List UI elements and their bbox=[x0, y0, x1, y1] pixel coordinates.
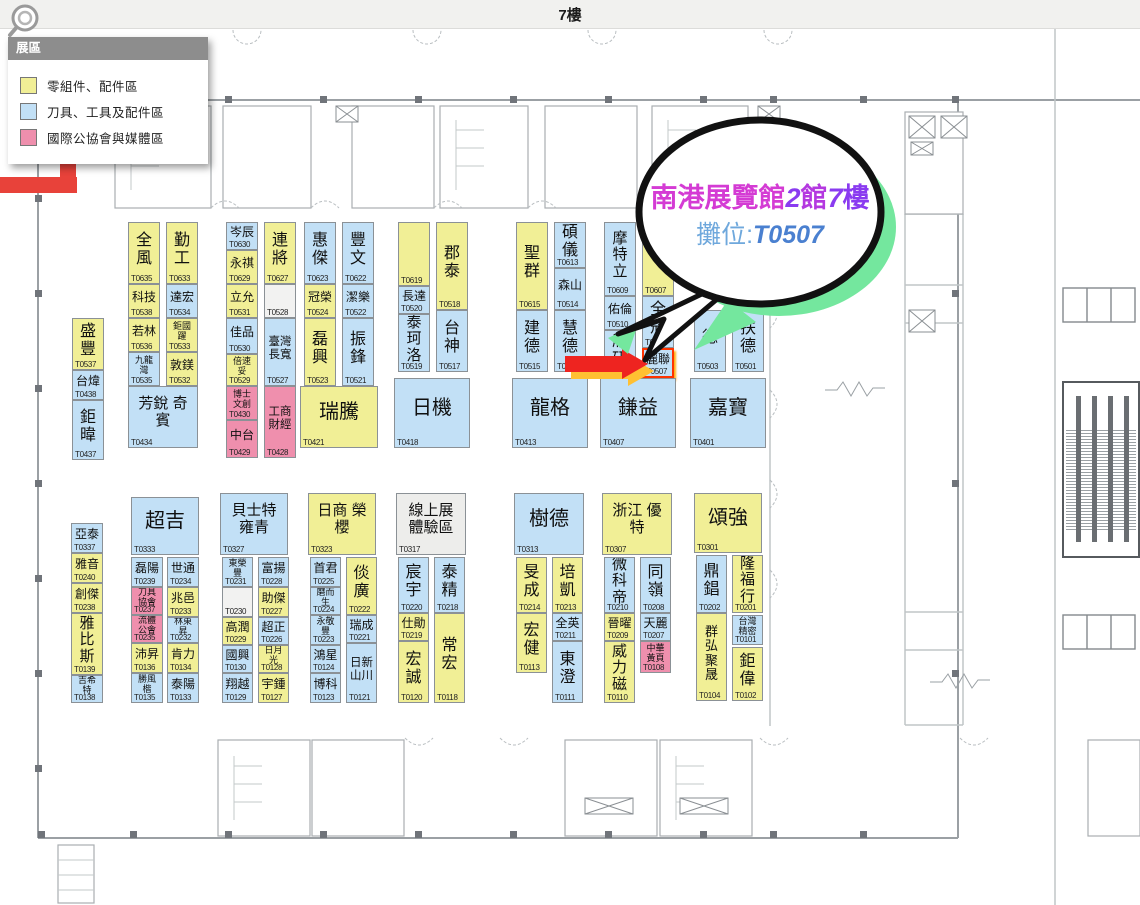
booth-number: T0231 bbox=[225, 577, 246, 586]
booth-T0520[interactable]: 長達T0520 bbox=[398, 286, 430, 314]
booth-label: 岑辰 bbox=[230, 226, 254, 239]
booth-T0138[interactable]: 吉希特T0138 bbox=[71, 675, 103, 703]
booth-T0202[interactable]: 鼎錩T0202 bbox=[696, 555, 727, 613]
booth-T0521[interactable]: 振鋒T0521 bbox=[342, 318, 374, 386]
booth-T0418[interactable]: 日機T0418 bbox=[394, 378, 470, 448]
booth-number: T0623 bbox=[307, 274, 328, 283]
booth-T0110[interactable]: 威力磁T0110 bbox=[604, 641, 635, 703]
booth-T0518[interactable]: 郡泰T0518 bbox=[436, 222, 468, 310]
booth-label: 建德 bbox=[519, 320, 545, 355]
booth-T0307[interactable]: 浙江 優特T0307 bbox=[602, 493, 672, 555]
booth-number: T0529 bbox=[229, 376, 250, 385]
booth-label: 翔越 bbox=[225, 678, 249, 691]
booth-T0503[interactable]: 德T0503 bbox=[694, 310, 726, 372]
legend-item-associations: 國際公協會與媒體區 bbox=[16, 128, 200, 147]
booth-label: 磊興 bbox=[307, 331, 333, 366]
legend: 展區 零組件、配件區 刀具、工具及配件區 國際公協會與媒體區 bbox=[8, 37, 208, 164]
booth-T0139[interactable]: 雅比斯T0139 bbox=[71, 613, 103, 675]
booth-label: 隆福行 bbox=[735, 556, 760, 605]
booth-T0528[interactable]: T0528 bbox=[264, 284, 296, 318]
booth-label: 潔樂 bbox=[346, 291, 370, 304]
booth-number: T0127 bbox=[261, 693, 282, 702]
booth-T0507[interactable]: 麗聯T0507 bbox=[642, 348, 674, 378]
booth-label: 貝士特 雍青 bbox=[223, 503, 285, 535]
booth-T0317[interactable]: 線上展 體驗區T0317 bbox=[396, 493, 466, 555]
booth-T0128[interactable]: 日月光T0128 bbox=[258, 645, 289, 673]
booth-number: T0527 bbox=[267, 376, 288, 385]
booth-label: 宏健 bbox=[519, 622, 544, 657]
booth-label: 台灣精密 bbox=[735, 617, 760, 636]
booth-label: 佑倫 bbox=[608, 303, 632, 316]
booth-number: T0635 bbox=[131, 274, 152, 283]
booth-T0235[interactable]: 流體公會T0235 bbox=[131, 615, 163, 643]
booth-number: T0522 bbox=[345, 308, 366, 317]
booth-T0534[interactable]: 達宏T0534 bbox=[166, 284, 198, 318]
booth-T0234[interactable]: 世通T0234 bbox=[167, 557, 199, 587]
booth-number: T0530 bbox=[229, 344, 250, 353]
booth-number: T0301 bbox=[697, 543, 718, 552]
booth-number: T0102 bbox=[735, 691, 756, 700]
booth-number: T0223 bbox=[313, 635, 334, 644]
booth-label: 宏誠 bbox=[401, 651, 426, 686]
booth-T0514[interactable]: 森山T0514 bbox=[554, 268, 586, 310]
booth-T0135[interactable]: 勝風楷T0135 bbox=[131, 673, 163, 703]
legend-swatch-pink bbox=[20, 129, 37, 146]
booth-label: 超吉 bbox=[145, 511, 185, 533]
booth-label: 日商 榮櫻 bbox=[311, 503, 373, 535]
booth-T0220[interactable]: 宸宇T0220 bbox=[398, 557, 429, 613]
booth-label: 碩儀 bbox=[557, 224, 583, 259]
booth-T0413[interactable]: 龍格T0413 bbox=[512, 378, 588, 448]
booth-label: 森山 bbox=[558, 279, 582, 292]
booth-number: T0428 bbox=[267, 448, 288, 457]
magnifier-icon bbox=[6, 1, 46, 41]
booth-number: T0233 bbox=[170, 607, 191, 616]
booth-T0224[interactable]: 磨而生T0224 bbox=[310, 587, 341, 615]
booth-label: 沛昇 bbox=[135, 648, 159, 661]
booth-number: T0218 bbox=[437, 603, 458, 612]
booth-number: T0135 bbox=[134, 693, 155, 702]
booth-number: T0129 bbox=[225, 693, 246, 702]
booth-number: T0209 bbox=[607, 631, 628, 640]
booth-label: 日機 bbox=[412, 398, 452, 420]
booth-label: 世通 bbox=[171, 562, 195, 575]
booth-label: 東榮豐 bbox=[225, 559, 250, 578]
booth-T0133[interactable]: 泰陽T0133 bbox=[167, 673, 199, 703]
booth-number: T0313 bbox=[517, 545, 538, 554]
booth-T0531[interactable]: 立允T0531 bbox=[226, 284, 258, 318]
booth-number: T0613 bbox=[557, 258, 578, 267]
booth-T0124[interactable]: 鴻星T0124 bbox=[310, 645, 341, 673]
booth-label: 中華黃頁 bbox=[643, 644, 668, 663]
booth-T0609[interactable]: 摩特立T0609 bbox=[604, 222, 636, 296]
booth-number: T0533 bbox=[169, 342, 190, 351]
booth-T0429[interactable]: 中台T0429 bbox=[226, 420, 258, 458]
booth-label: 麗聯 bbox=[646, 353, 670, 366]
booth-number: T0111 bbox=[555, 693, 575, 702]
booth-T0102[interactable]: 鉅偉T0102 bbox=[732, 647, 763, 701]
booth-number: T0507 bbox=[646, 367, 667, 376]
booth-T0239[interactable]: 磊陽T0239 bbox=[131, 557, 163, 587]
booth-T0428[interactable]: 工商財經T0428 bbox=[264, 386, 296, 458]
booth-label: 摩特立 bbox=[607, 231, 633, 280]
booth-label: 龍格 bbox=[530, 398, 570, 420]
booth-label: 全英 bbox=[555, 617, 579, 630]
booth-T0532[interactable]: 敦鎂T0532 bbox=[166, 352, 198, 386]
booth-number: T0401 bbox=[693, 438, 714, 447]
booth-number: T0237 bbox=[134, 605, 155, 614]
booth-T0238[interactable]: 創傑T0238 bbox=[71, 583, 103, 613]
booth-label: 東澄 bbox=[555, 651, 580, 686]
booth-T0421[interactable]: 瑞騰T0421 bbox=[300, 386, 378, 448]
booth-T0240[interactable]: 雅音T0240 bbox=[71, 553, 103, 583]
booth-T0630[interactable]: 岑辰T0630 bbox=[226, 222, 258, 250]
booth-label: 樹德 bbox=[529, 509, 569, 531]
zoom-button[interactable] bbox=[6, 1, 46, 41]
booth-label: 盛豐 bbox=[75, 323, 101, 358]
booth-number: T0518 bbox=[439, 300, 460, 309]
booth-T0437[interactable]: 鉅暐T0437 bbox=[72, 400, 104, 460]
booth-T0218[interactable]: 泰精T0218 bbox=[434, 557, 465, 613]
booth-label: 勝風楷 bbox=[134, 675, 160, 694]
booth-T0517[interactable]: 台神T0517 bbox=[436, 310, 468, 372]
title-bar: 7樓 bbox=[0, 0, 1140, 29]
booth-number: T0337 bbox=[74, 543, 95, 552]
booth-T0635[interactable]: 全風T0635 bbox=[128, 222, 160, 284]
booth-T0123[interactable]: 博科T0123 bbox=[310, 673, 341, 703]
booth-label: 佳品 bbox=[230, 326, 254, 339]
booth-number: T0201 bbox=[735, 603, 756, 612]
booth-number: T0538 bbox=[131, 308, 152, 317]
booth-T0223[interactable]: 永敬豐T0223 bbox=[310, 615, 341, 645]
booth-T0337[interactable]: 亞泰T0337 bbox=[71, 523, 103, 553]
booth-label: 達宏 bbox=[170, 291, 194, 304]
booth-number: T0214 bbox=[519, 603, 540, 612]
booth-T0327[interactable]: 貝士特 雍青T0327 bbox=[220, 493, 288, 555]
booth-number: T0515 bbox=[519, 362, 540, 371]
booth-label: 仕勛 bbox=[401, 617, 425, 630]
booth-T0228[interactable]: 富揚T0228 bbox=[258, 557, 289, 587]
booth-number: T0213 bbox=[555, 603, 576, 612]
booth-label: 立允 bbox=[230, 291, 254, 304]
booth-label: 日新山川 bbox=[349, 657, 374, 682]
booth-number: T0225 bbox=[313, 577, 334, 586]
booth-number: T0407 bbox=[603, 438, 624, 447]
booth-number: T0429 bbox=[229, 448, 250, 457]
booth-number: T0437 bbox=[75, 450, 96, 459]
booth-number: T0323 bbox=[311, 545, 332, 554]
booth-T0524[interactable]: 冠榮T0524 bbox=[304, 284, 336, 318]
booth-T0523[interactable]: 磊興T0523 bbox=[304, 318, 336, 386]
booth-label: 天麗 bbox=[643, 617, 667, 630]
booth-T0537[interactable]: 盛豐T0537 bbox=[72, 318, 104, 370]
booth-T0333[interactable]: 超吉T0333 bbox=[131, 497, 199, 555]
booth-number: T0317 bbox=[399, 545, 420, 554]
booth-number: T0531 bbox=[229, 308, 250, 317]
legend-item-components: 零組件、配件區 bbox=[16, 76, 200, 95]
booth-number: T0629 bbox=[229, 274, 250, 283]
booth-label: 扶德 bbox=[735, 320, 761, 355]
booth-label: 首君 bbox=[313, 562, 337, 575]
booth-label: 勤工 bbox=[169, 232, 195, 267]
booth-number: T0434 bbox=[131, 438, 152, 447]
booth-number: T0521 bbox=[345, 376, 366, 385]
booth-T0430[interactable]: 博士文創T0430 bbox=[226, 386, 258, 420]
booth-number: T0134 bbox=[170, 663, 191, 672]
booth-number: T0622 bbox=[345, 274, 366, 283]
booth-label: 宇鍾 bbox=[261, 678, 285, 691]
booth-T0633[interactable]: 勤工T0633 bbox=[166, 222, 198, 284]
booth-T0136[interactable]: 沛昇T0136 bbox=[131, 643, 163, 673]
booth-label: 敦鎂 bbox=[170, 359, 194, 372]
booth-label: 郡泰 bbox=[439, 245, 465, 280]
booth-T0113[interactable]: 宏健T0113 bbox=[516, 613, 547, 673]
booth-number: T0226 bbox=[261, 635, 282, 644]
legend-swatch-blue bbox=[20, 103, 37, 120]
booth-number: T0130 bbox=[225, 663, 246, 672]
booth-label: 永祺 bbox=[230, 257, 254, 270]
booth-number: T0307 bbox=[605, 545, 626, 554]
booth-label: 肯力 bbox=[171, 648, 195, 661]
booth-T0619[interactable]: T0619 bbox=[398, 222, 430, 286]
floor-title: 7樓 bbox=[558, 4, 581, 25]
booth-number: T0224 bbox=[313, 605, 334, 614]
booth-T0111[interactable]: 東澄T0111 bbox=[552, 641, 583, 703]
booth-label: 助傑 bbox=[261, 592, 285, 605]
booth-T0530[interactable]: 佳品T0530 bbox=[226, 318, 258, 354]
booth-label: 磊陽 bbox=[135, 562, 159, 575]
booth-T0527[interactable]: 臺灣長寬T0527 bbox=[264, 318, 296, 386]
booth-T0535[interactable]: 九龍灣T0535 bbox=[128, 352, 160, 386]
booth-T0434[interactable]: 芳銳 奇賓T0434 bbox=[128, 386, 198, 448]
booth-number: T0136 bbox=[134, 663, 155, 672]
booth-T0613[interactable]: 碩儀T0613 bbox=[554, 222, 586, 268]
booth-T0536[interactable]: 若林T0536 bbox=[128, 318, 160, 352]
booth-number: T0235 bbox=[134, 633, 155, 642]
booth-number: T0630 bbox=[229, 240, 250, 249]
booth-number: T0238 bbox=[74, 603, 95, 612]
booth-T0130[interactable]: 國興T0130 bbox=[222, 645, 253, 673]
booth-label: 倓廣 bbox=[349, 565, 374, 600]
booth-T0221[interactable]: 瑞成T0221 bbox=[346, 615, 377, 643]
booth-number: T0120 bbox=[401, 693, 422, 702]
booth-T0233[interactable]: 兆邑T0233 bbox=[167, 587, 199, 617]
booth-T0226[interactable]: 超正T0226 bbox=[258, 617, 289, 645]
booth-number: T0232 bbox=[170, 633, 191, 642]
booth-T0127[interactable]: 宇鍾T0127 bbox=[258, 673, 289, 703]
booth-number: T0523 bbox=[307, 376, 328, 385]
booth-T0629[interactable]: 永祺T0629 bbox=[226, 250, 258, 284]
booth-label: 高潤 bbox=[225, 621, 249, 634]
booth-number: T0128 bbox=[261, 663, 282, 672]
booth-T0227[interactable]: 助傑T0227 bbox=[258, 587, 289, 617]
booth-T0607[interactable]: T0607 bbox=[642, 222, 674, 296]
booth-number: T0108 bbox=[643, 663, 664, 672]
booth-label: 若林 bbox=[132, 325, 156, 338]
booth-number: T0418 bbox=[397, 438, 418, 447]
booth-T0214[interactable]: 旻成T0214 bbox=[516, 557, 547, 613]
booth-T0121[interactable]: 日新山川T0121 bbox=[346, 643, 377, 703]
booth-label: 全風 bbox=[131, 232, 157, 267]
booth-number: T0609 bbox=[607, 286, 628, 295]
booth-T0510[interactable]: 佑倫T0510 bbox=[604, 296, 636, 330]
booth-label: 九龍灣 bbox=[131, 356, 157, 375]
legend-item-tools: 刀具、工具及配件區 bbox=[16, 102, 200, 121]
booth-label: 振鋒 bbox=[345, 331, 371, 366]
booth-label: 同嶺 bbox=[643, 564, 668, 599]
booth-number: T0230 bbox=[225, 607, 246, 616]
booth-T0509[interactable]: 欣研T0509 bbox=[604, 330, 636, 378]
booth-label: 國興 bbox=[225, 649, 249, 662]
booth-T0622[interactable]: 豐文T0622 bbox=[342, 222, 374, 284]
booth-label: 兆邑 bbox=[171, 592, 195, 605]
booth-T0207[interactable]: 天麗T0207 bbox=[640, 613, 671, 641]
booth-number: T0438 bbox=[75, 390, 96, 399]
booth-number: T0519 bbox=[401, 362, 422, 371]
booth-label: 永敬豐 bbox=[313, 617, 338, 636]
booth-number: T0124 bbox=[313, 663, 334, 672]
booth-label: 創傑 bbox=[75, 588, 99, 601]
booth-label: 旻成 bbox=[519, 564, 544, 599]
booth-number: T0537 bbox=[75, 360, 96, 369]
booth-number: T0227 bbox=[261, 607, 282, 616]
booth-T0229[interactable]: 高潤T0229 bbox=[222, 617, 253, 645]
booth-label: 宸宇 bbox=[401, 564, 426, 599]
booth-T0101[interactable]: 台灣精密T0101 bbox=[732, 615, 763, 645]
booth-number: T0524 bbox=[307, 308, 328, 317]
booth-T0201[interactable]: 隆福行T0201 bbox=[732, 555, 763, 613]
booth-label: 培凱 bbox=[555, 564, 580, 599]
booth-label: 德 bbox=[702, 329, 718, 346]
booth-number: T0210 bbox=[607, 603, 628, 612]
booth-label: 台神 bbox=[439, 320, 465, 355]
booth-label: 瑞騰 bbox=[319, 402, 359, 424]
booth-number: T0229 bbox=[225, 635, 246, 644]
booth-number: T0607 bbox=[645, 286, 666, 295]
booth-label: 惠傑 bbox=[307, 232, 333, 267]
booth-label: 鎌益 bbox=[618, 398, 658, 420]
booth-number: T0220 bbox=[401, 603, 422, 612]
booth-label: 微科帝 bbox=[607, 557, 632, 606]
booth-T0222[interactable]: 倓廣T0222 bbox=[346, 557, 377, 615]
booth-T0237[interactable]: 刀具協會T0237 bbox=[131, 587, 163, 615]
booth-T0438[interactable]: 台煒T0438 bbox=[72, 370, 104, 400]
booth-number: T0133 bbox=[170, 693, 191, 702]
booth-number: T0333 bbox=[134, 545, 155, 554]
booth-label: 欣研 bbox=[607, 333, 633, 368]
booth-label: 科技 bbox=[132, 291, 156, 304]
booth-T0219[interactable]: 仕勛T0219 bbox=[398, 613, 429, 641]
booth-T0313[interactable]: 樹德T0313 bbox=[514, 493, 584, 555]
booth-number: T0513 bbox=[557, 362, 578, 371]
booth-T0515[interactable]: 建德T0515 bbox=[516, 310, 548, 372]
booth-number: T0139 bbox=[74, 665, 95, 674]
booth-T0232[interactable]: 林東昇T0232 bbox=[167, 617, 199, 643]
booth-number: T0503 bbox=[697, 362, 718, 371]
legend-swatch-yellow bbox=[20, 77, 37, 94]
booth-label: 全冠 bbox=[645, 301, 671, 336]
booth-number: T0619 bbox=[401, 276, 422, 285]
booth-number: T0520 bbox=[401, 304, 422, 313]
booth-T0213[interactable]: 培凱T0213 bbox=[552, 557, 583, 613]
booth-label: 瑞成 bbox=[349, 619, 373, 632]
booth-number: T0510 bbox=[607, 320, 628, 329]
booth-T0129[interactable]: 翔越T0129 bbox=[222, 673, 253, 703]
booth-label: 浙江 優特 bbox=[605, 503, 669, 535]
booth-T0230[interactable]: T0230 bbox=[222, 587, 253, 617]
booth-number: T0123 bbox=[313, 693, 334, 702]
booth-label: 嘉寶 bbox=[708, 398, 748, 420]
booth-T0118[interactable]: 常宏T0118 bbox=[434, 613, 465, 703]
booth-T0134[interactable]: 肯力T0134 bbox=[167, 643, 199, 673]
booth-number: T0211 bbox=[555, 631, 576, 640]
booth-label: 博科 bbox=[313, 678, 337, 691]
booth-label: 鉅暐 bbox=[75, 409, 101, 444]
booth-T0231[interactable]: 東榮豐T0231 bbox=[222, 557, 253, 587]
booth-T0210[interactable]: 微科帝T0210 bbox=[604, 557, 635, 613]
booth-number: T0509 bbox=[607, 368, 628, 377]
booth-number: T0219 bbox=[401, 631, 422, 640]
booth-label: 芳銳 奇賓 bbox=[131, 396, 195, 428]
booth-number: T0202 bbox=[699, 603, 720, 612]
booth-T0508[interactable]: 全冠T0508 bbox=[642, 296, 674, 348]
booth-label: 威力磁 bbox=[607, 644, 632, 693]
booth-T0538[interactable]: 科技T0538 bbox=[128, 284, 160, 318]
booth-T0501[interactable]: 扶德T0501 bbox=[732, 310, 764, 372]
booth-number: T0615 bbox=[519, 300, 540, 309]
booth-number: T0240 bbox=[74, 573, 95, 582]
booth-number: T0110 bbox=[607, 693, 628, 702]
booth-label: 長達 bbox=[402, 290, 426, 303]
booth-T0522[interactable]: 潔樂T0522 bbox=[342, 284, 374, 318]
booth-T0211[interactable]: 全英T0211 bbox=[552, 613, 583, 641]
booth-number: T0536 bbox=[131, 342, 152, 351]
booth-label: 超正 bbox=[261, 621, 285, 634]
booth-T0225[interactable]: 首君T0225 bbox=[310, 557, 341, 587]
booth-number: T0239 bbox=[134, 577, 155, 586]
booth-T0120[interactable]: 宏誠T0120 bbox=[398, 641, 429, 703]
booth-number: T0430 bbox=[229, 410, 250, 419]
booth-label: 慧德 bbox=[557, 320, 583, 355]
booth-number: T0222 bbox=[349, 605, 370, 614]
booth-label: 富揚 bbox=[261, 562, 285, 575]
booth-number: T0633 bbox=[169, 274, 190, 283]
booth-T0208[interactable]: 同嶺T0208 bbox=[640, 557, 671, 613]
booth-T0209[interactable]: 晉曜T0209 bbox=[604, 613, 635, 641]
booth-number: T0514 bbox=[557, 300, 578, 309]
booth-number: T0627 bbox=[267, 274, 288, 283]
booth-T0407[interactable]: 鎌益T0407 bbox=[600, 378, 676, 448]
booth-T0513[interactable]: 慧德T0513 bbox=[554, 310, 586, 372]
booth-T0519[interactable]: 泰珂洛T0519 bbox=[398, 314, 430, 372]
booth-number: T0207 bbox=[643, 631, 664, 640]
booth-label: 臺灣長寬 bbox=[267, 336, 293, 361]
booth-T0615[interactable]: 聖群T0615 bbox=[516, 222, 548, 310]
booth-T0108[interactable]: 中華黃頁T0108 bbox=[640, 641, 671, 673]
booth-T0533[interactable]: 鉅國躍T0533 bbox=[166, 318, 198, 352]
booth-T0623[interactable]: 惠傑T0623 bbox=[304, 222, 336, 284]
booth-T0104[interactable]: 群弘 聚晟T0104 bbox=[696, 613, 727, 701]
booth-T0627[interactable]: 連將T0627 bbox=[264, 222, 296, 284]
booth-number: T0208 bbox=[643, 603, 664, 612]
booth-T0529[interactable]: 倍速妥T0529 bbox=[226, 354, 258, 386]
booth-number: T0528 bbox=[267, 308, 288, 317]
booth-number: T0327 bbox=[223, 545, 244, 554]
booth-T0401[interactable]: 嘉寶T0401 bbox=[690, 378, 766, 448]
booth-T0323[interactable]: 日商 榮櫻T0323 bbox=[308, 493, 376, 555]
booth-label: 工商財經 bbox=[267, 406, 293, 431]
booth-T0301[interactable]: 頌強T0301 bbox=[694, 493, 762, 553]
